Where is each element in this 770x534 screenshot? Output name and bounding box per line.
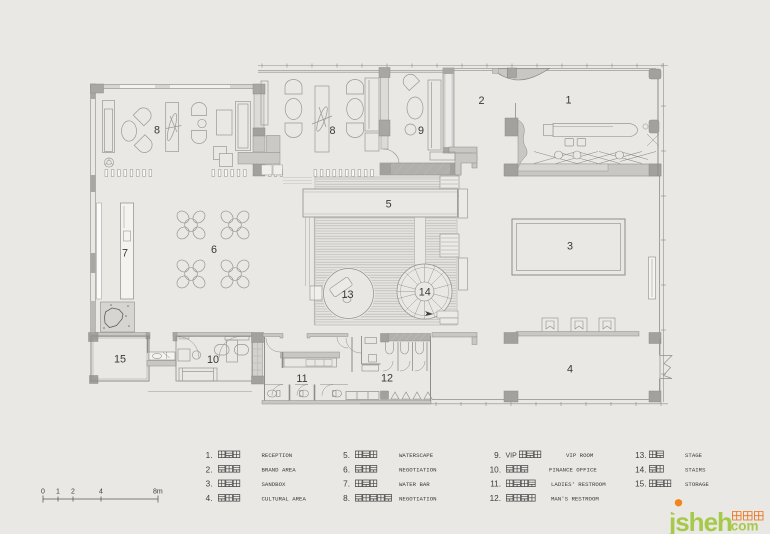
svg-text:15.: 15. — [635, 480, 646, 489]
svg-text:STAIRS: STAIRS — [685, 467, 706, 474]
svg-text:13.: 13. — [635, 451, 646, 460]
svg-text:0: 0 — [41, 489, 45, 496]
svg-text:.com: .com — [727, 519, 759, 534]
svg-text:1: 1 — [565, 95, 571, 107]
svg-text:SANDBOX: SANDBOX — [262, 481, 286, 488]
svg-text:9.: 9. — [494, 451, 501, 460]
svg-text:15: 15 — [114, 354, 126, 366]
svg-text:VIP: VIP — [506, 453, 518, 460]
svg-text:2: 2 — [71, 489, 75, 496]
svg-text:12.: 12. — [490, 494, 501, 503]
svg-text:12: 12 — [381, 372, 393, 384]
svg-text:11.: 11. — [490, 480, 501, 489]
svg-text:3: 3 — [567, 240, 573, 252]
svg-text:10: 10 — [207, 354, 219, 366]
svg-text:VIP ROOM: VIP ROOM — [566, 452, 594, 459]
svg-text:14.: 14. — [635, 465, 646, 474]
svg-text:RECEPTION: RECEPTION — [262, 452, 293, 459]
svg-text:CULTURAL AREA: CULTURAL AREA — [262, 496, 307, 503]
svg-text:6: 6 — [211, 244, 217, 256]
svg-text:9: 9 — [418, 125, 424, 137]
svg-text:NEGOTIATION: NEGOTIATION — [399, 467, 437, 474]
svg-text:4: 4 — [99, 489, 103, 496]
svg-text:BRAND AREA: BRAND AREA — [262, 467, 297, 474]
svg-text:MAN'S RESTROOM: MAN'S RESTROOM — [551, 496, 599, 503]
svg-text:2.: 2. — [206, 465, 213, 474]
svg-text:2: 2 — [478, 95, 484, 107]
svg-text:7.: 7. — [343, 480, 350, 489]
svg-text:NEGOTIATION: NEGOTIATION — [399, 496, 437, 503]
svg-text:8.: 8. — [343, 494, 350, 503]
svg-text:10.: 10. — [490, 465, 501, 474]
svg-text:7: 7 — [122, 247, 128, 259]
svg-text:1.: 1. — [206, 451, 213, 460]
svg-text:1: 1 — [56, 489, 60, 496]
svg-text:3.: 3. — [206, 480, 213, 489]
svg-text:WATERSCAPE: WATERSCAPE — [399, 452, 434, 459]
svg-text:4: 4 — [567, 363, 573, 375]
svg-text:WATER BAR: WATER BAR — [399, 481, 430, 488]
svg-text:14: 14 — [419, 286, 431, 298]
svg-text:13: 13 — [341, 289, 353, 301]
svg-text:5.: 5. — [343, 451, 350, 460]
svg-text:STORAGE: STORAGE — [685, 481, 709, 488]
svg-text:LADIES' RESTROOM: LADIES' RESTROOM — [551, 481, 606, 488]
svg-text:4.: 4. — [206, 494, 213, 503]
svg-text:8: 8 — [329, 125, 335, 137]
svg-text:5: 5 — [386, 199, 392, 211]
svg-text:8: 8 — [154, 124, 160, 136]
svg-text:STAGE: STAGE — [685, 452, 703, 459]
svg-text:8m: 8m — [153, 489, 163, 496]
svg-text:11: 11 — [296, 373, 307, 385]
svg-text:6.: 6. — [343, 465, 350, 474]
svg-text:FINANCE OFFICE: FINANCE OFFICE — [549, 467, 597, 474]
